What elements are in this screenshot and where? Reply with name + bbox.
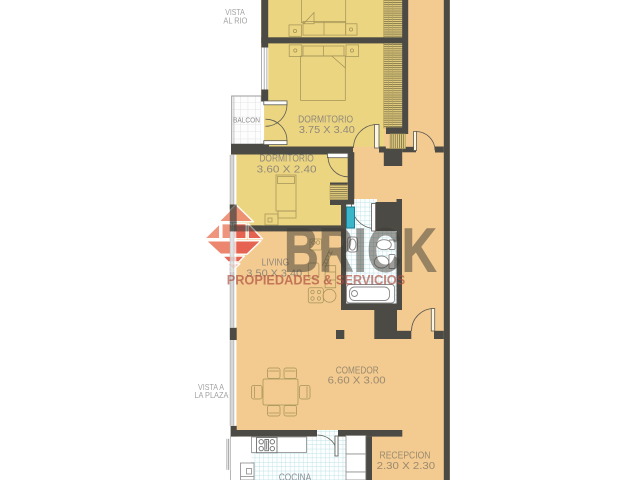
svg-text:PROPIEDADES & SERVICIOS: PROPIEDADES & SERVICIOS xyxy=(227,272,406,287)
svg-text:BALCON: BALCON xyxy=(233,116,260,125)
svg-text:COCINA: COCINA xyxy=(279,473,312,480)
svg-text:3.75 X 3.40: 3.75 X 3.40 xyxy=(299,125,356,136)
svg-text:DORMITORIO: DORMITORIO xyxy=(298,114,353,125)
svg-text:3.60 X 2.40: 3.60 X 2.40 xyxy=(257,164,318,175)
svg-text:DORMITORIO: DORMITORIO xyxy=(259,154,314,165)
svg-text:LA PLAZA: LA PLAZA xyxy=(194,391,229,400)
svg-text:RECEPCION: RECEPCION xyxy=(380,450,431,461)
svg-text:6.60 X 3.00: 6.60 X 3.00 xyxy=(328,375,387,386)
svg-text:AL RIO: AL RIO xyxy=(223,16,247,25)
svg-text:2.30 X 2.30: 2.30 X 2.30 xyxy=(377,461,436,472)
